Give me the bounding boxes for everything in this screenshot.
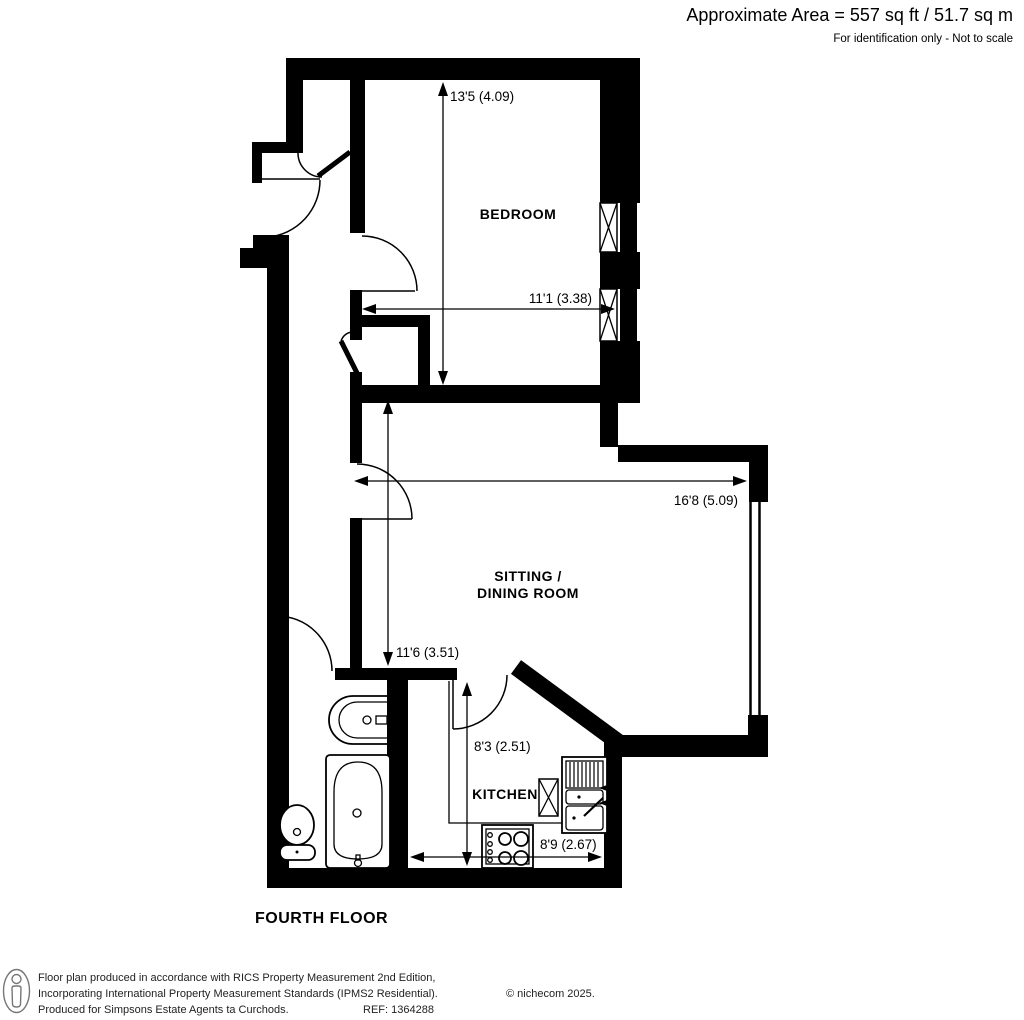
bedroom-window-1 (600, 203, 617, 252)
kitchen-depth-dimension: 8'3 (2.51) (474, 739, 531, 754)
footer-line1: Floor plan produced in accordance with R… (38, 972, 435, 984)
kitchen-depth-arrow (462, 682, 472, 866)
sitting-room-label-line1: SITTING / (494, 568, 562, 584)
footer-copyright: © nichecom 2025. (506, 988, 595, 1000)
bathroom-fixtures (280, 696, 390, 868)
kitchen-label: KITCHEN (472, 786, 538, 802)
bedroom-depth-arrow (438, 82, 448, 385)
bedroom-window-2 (600, 289, 617, 341)
footer-line2: Incorporating International Property Mea… (38, 988, 438, 1000)
entrance-door (262, 179, 320, 237)
sitting-room-window (751, 502, 760, 715)
kitchen-door (453, 675, 507, 729)
walls (240, 58, 768, 888)
bedroom-width-dimension: 11'1 (3.38) (529, 291, 592, 306)
footer: Floor plan produced in accordance with R… (4, 970, 595, 1017)
footer-line3: Produced for Simpsons Estate Agents ta C… (38, 1004, 289, 1016)
sitting-room-label-line2: DINING ROOM (477, 585, 579, 601)
wash-basin (329, 696, 387, 744)
hob (482, 825, 533, 868)
kitchen-sink (562, 757, 607, 833)
toilet (280, 805, 315, 860)
bedroom-label: BEDROOM (480, 206, 557, 222)
floor-plan-page: Approximate Area = 557 sq ft / 51.7 sq m… (0, 0, 1024, 1020)
diagonal-wall (516, 667, 618, 742)
doors (262, 152, 507, 729)
bedroom-depth-dimension: 13'5 (4.09) (450, 89, 514, 104)
floor-label: FOURTH FLOOR (255, 910, 388, 927)
nichecom-logo (4, 970, 30, 1013)
footer-ref-number: REF: 1364288 (363, 1004, 434, 1016)
approximate-area-title: Approximate Area = 557 sq ft / 51.7 sq m (686, 5, 1013, 25)
bedroom-door (362, 236, 417, 291)
sitting-depth-arrow (383, 400, 393, 666)
kitchen-unit-symbol (539, 779, 558, 816)
hall-cupboard-door (298, 152, 350, 177)
sitting-room-door (357, 464, 412, 519)
sitting-depth-dimension: 11'6 (3.51) (396, 645, 459, 660)
kitchen-width-dimension: 8'9 (2.67) (540, 837, 597, 852)
identification-disclaimer: For identification only - Not to scale (833, 33, 1013, 45)
bathtub (326, 755, 390, 868)
person-icon (12, 975, 21, 1008)
sitting-width-arrow (354, 476, 747, 486)
floor-plan-drawing: Approximate Area = 557 sq ft / 51.7 sq m… (0, 0, 1024, 1020)
sitting-width-dimension: 16'8 (5.09) (674, 493, 738, 508)
